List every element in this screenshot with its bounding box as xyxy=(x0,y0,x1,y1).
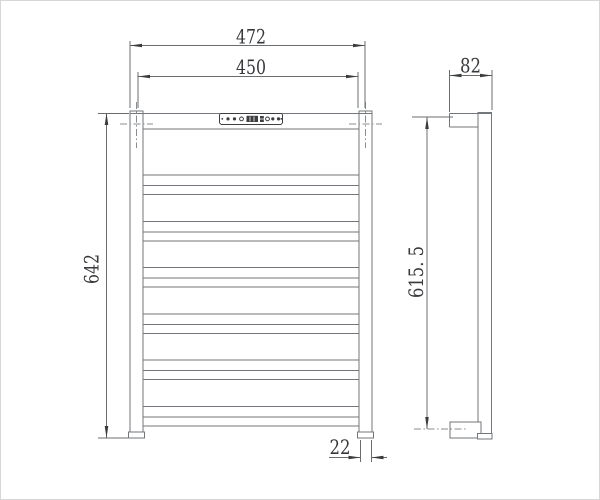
panel-end-tick-icon xyxy=(222,118,224,120)
dimension-side-depth: 82 xyxy=(450,55,493,113)
arrow-right-icon xyxy=(480,74,492,78)
dim-overall-height-label: 642 xyxy=(81,254,104,284)
dimension-overall-height: 642 xyxy=(81,113,130,438)
arrow-up-icon xyxy=(105,113,109,125)
towel-rung xyxy=(143,407,359,427)
arrow-down-icon xyxy=(105,426,109,438)
control-panel xyxy=(220,113,283,124)
arrow-left-icon xyxy=(138,75,150,79)
dim-overall-width-label: 472 xyxy=(236,26,266,49)
arrow-right-icon xyxy=(346,75,358,79)
dim-side-depth-label: 82 xyxy=(460,55,481,78)
dim-bar-width-label: 450 xyxy=(236,56,266,79)
display-screen xyxy=(247,116,259,122)
side-bottom-bracket xyxy=(450,422,481,438)
towel-rung xyxy=(143,268,359,288)
panel-end-tick-icon xyxy=(281,118,283,120)
arrow-down-icon xyxy=(425,417,429,429)
drawing-page: 472 450 642 22 82 xyxy=(0,0,600,500)
front-left-post xyxy=(130,111,143,438)
arrow-left-icon xyxy=(372,456,384,460)
towel-rung xyxy=(143,314,359,334)
front-left-foot xyxy=(129,432,145,438)
dimension-post-width: 22 xyxy=(329,436,387,462)
front-right-post xyxy=(359,111,372,438)
dim-side-height-label: 615. 5 xyxy=(405,246,428,298)
technical-drawing-canvas: 472 450 642 22 82 xyxy=(1,1,600,500)
power-dot-icon xyxy=(233,117,236,120)
front-right-foot xyxy=(358,432,374,438)
arrow-right-icon xyxy=(353,44,365,48)
dim-post-width-label: 22 xyxy=(330,436,351,459)
dimension-side-height: 615. 5 xyxy=(405,117,453,429)
arrow-up-icon xyxy=(425,117,429,129)
power-dot-icon xyxy=(271,117,274,120)
towel-rung xyxy=(143,221,359,241)
power-dot-icon xyxy=(277,117,280,120)
power-dot-icon xyxy=(226,117,229,120)
towel-rungs xyxy=(143,175,359,426)
front-view xyxy=(120,102,382,438)
towel-rung xyxy=(143,360,359,380)
side-post-bar xyxy=(478,113,492,440)
dimension-bar-width: 450 xyxy=(138,56,358,108)
towel-rung xyxy=(143,175,359,195)
side-foot xyxy=(478,434,493,440)
arrow-left-icon xyxy=(130,44,142,48)
